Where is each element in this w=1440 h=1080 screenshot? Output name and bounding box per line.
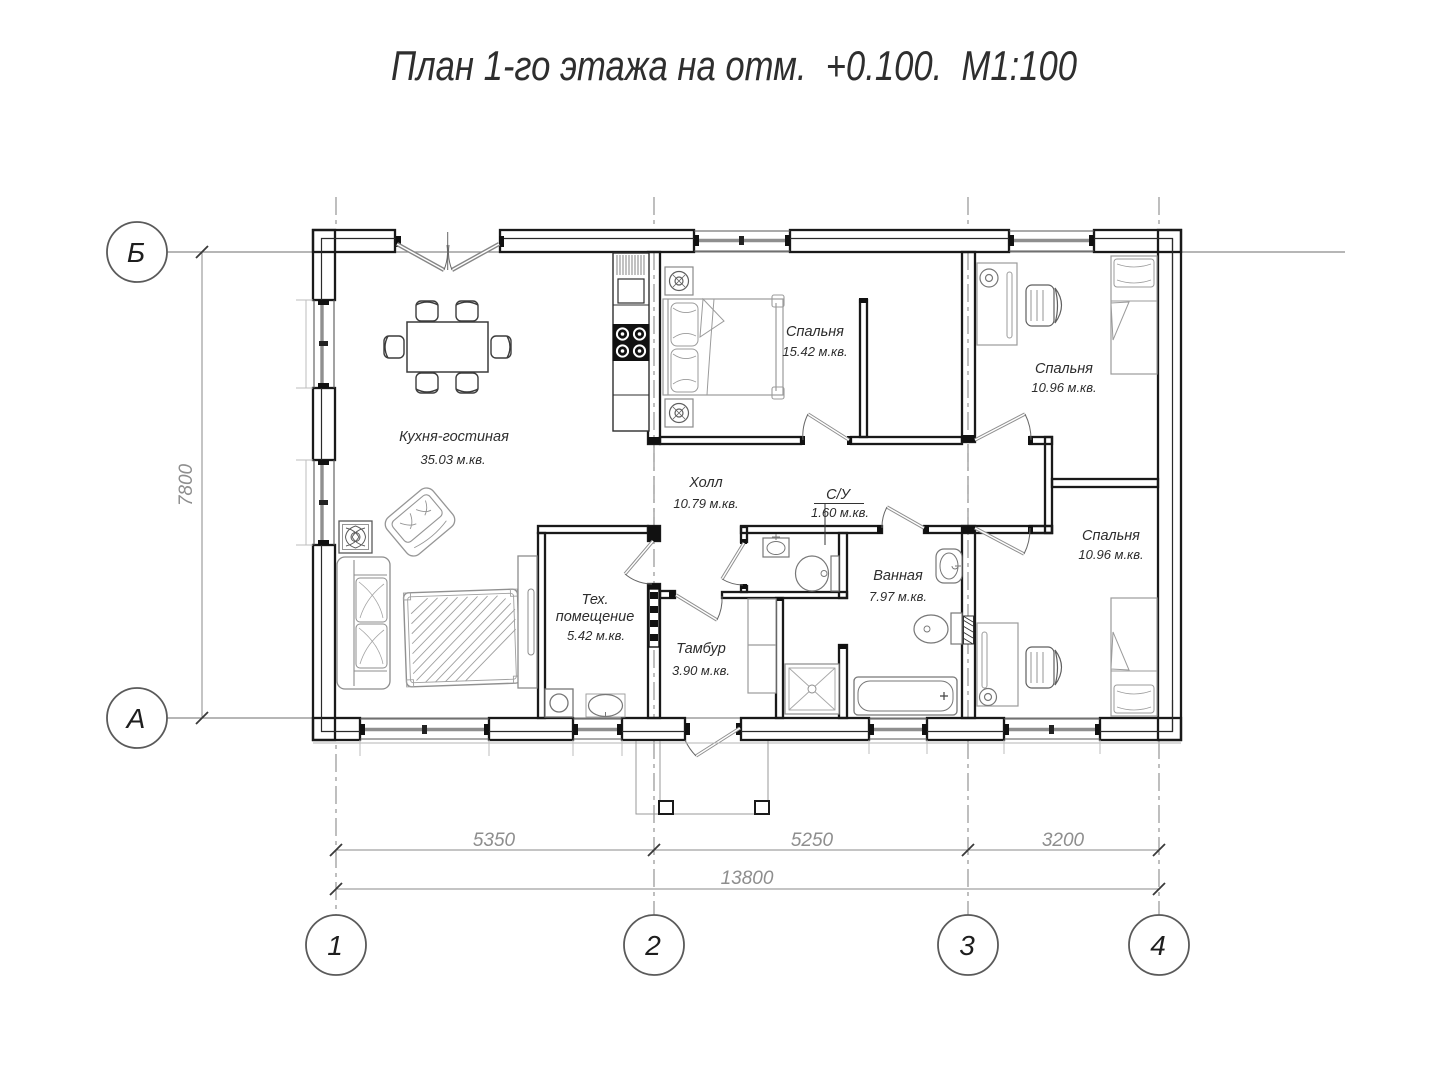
svg-text:35.03 м.кв.: 35.03 м.кв. [420,452,485,467]
svg-text:помещение: помещение [556,609,635,625]
svg-text:13800: 13800 [721,868,774,889]
svg-text:А: А [125,703,146,734]
svg-text:Кухня-гостиная: Кухня-гостиная [399,429,509,445]
svg-text:Тамбур: Тамбур [676,641,726,657]
svg-text:Ванная: Ванная [873,568,923,584]
svg-text:С/У: С/У [826,487,852,503]
svg-text:1.60 м.кв.: 1.60 м.кв. [811,505,869,520]
svg-text:5.42 м.кв.: 5.42 м.кв. [567,628,625,643]
svg-text:4: 4 [1150,930,1166,961]
svg-text:3.90 м.кв.: 3.90 м.кв. [672,663,730,678]
svg-text:Спальня: Спальня [1082,528,1140,544]
svg-text:10.96 м.кв.: 10.96 м.кв. [1031,380,1096,395]
svg-text:3: 3 [959,930,975,961]
svg-text:7.97 м.кв.: 7.97 м.кв. [869,589,927,604]
svg-text:Спальня: Спальня [1035,361,1093,377]
svg-text:Тех.: Тех. [581,592,608,608]
svg-text:Холл: Холл [688,475,722,491]
svg-text:7800: 7800 [176,463,197,506]
svg-text:3200: 3200 [1042,830,1085,851]
svg-text:10.96 м.кв.: 10.96 м.кв. [1078,547,1143,562]
svg-text:1: 1 [327,930,343,961]
svg-text:План 1-го этажа на отм. +0.10: План 1-го этажа на отм. +0.100. М1:100 [391,42,1078,89]
svg-text:Б: Б [127,237,145,268]
svg-text:5250: 5250 [791,830,834,851]
svg-text:Спальня: Спальня [786,324,844,340]
svg-text:5350: 5350 [473,830,516,851]
svg-text:10.79 м.кв.: 10.79 м.кв. [673,496,738,511]
svg-text:2: 2 [644,930,661,961]
svg-text:15.42 м.кв.: 15.42 м.кв. [782,344,847,359]
